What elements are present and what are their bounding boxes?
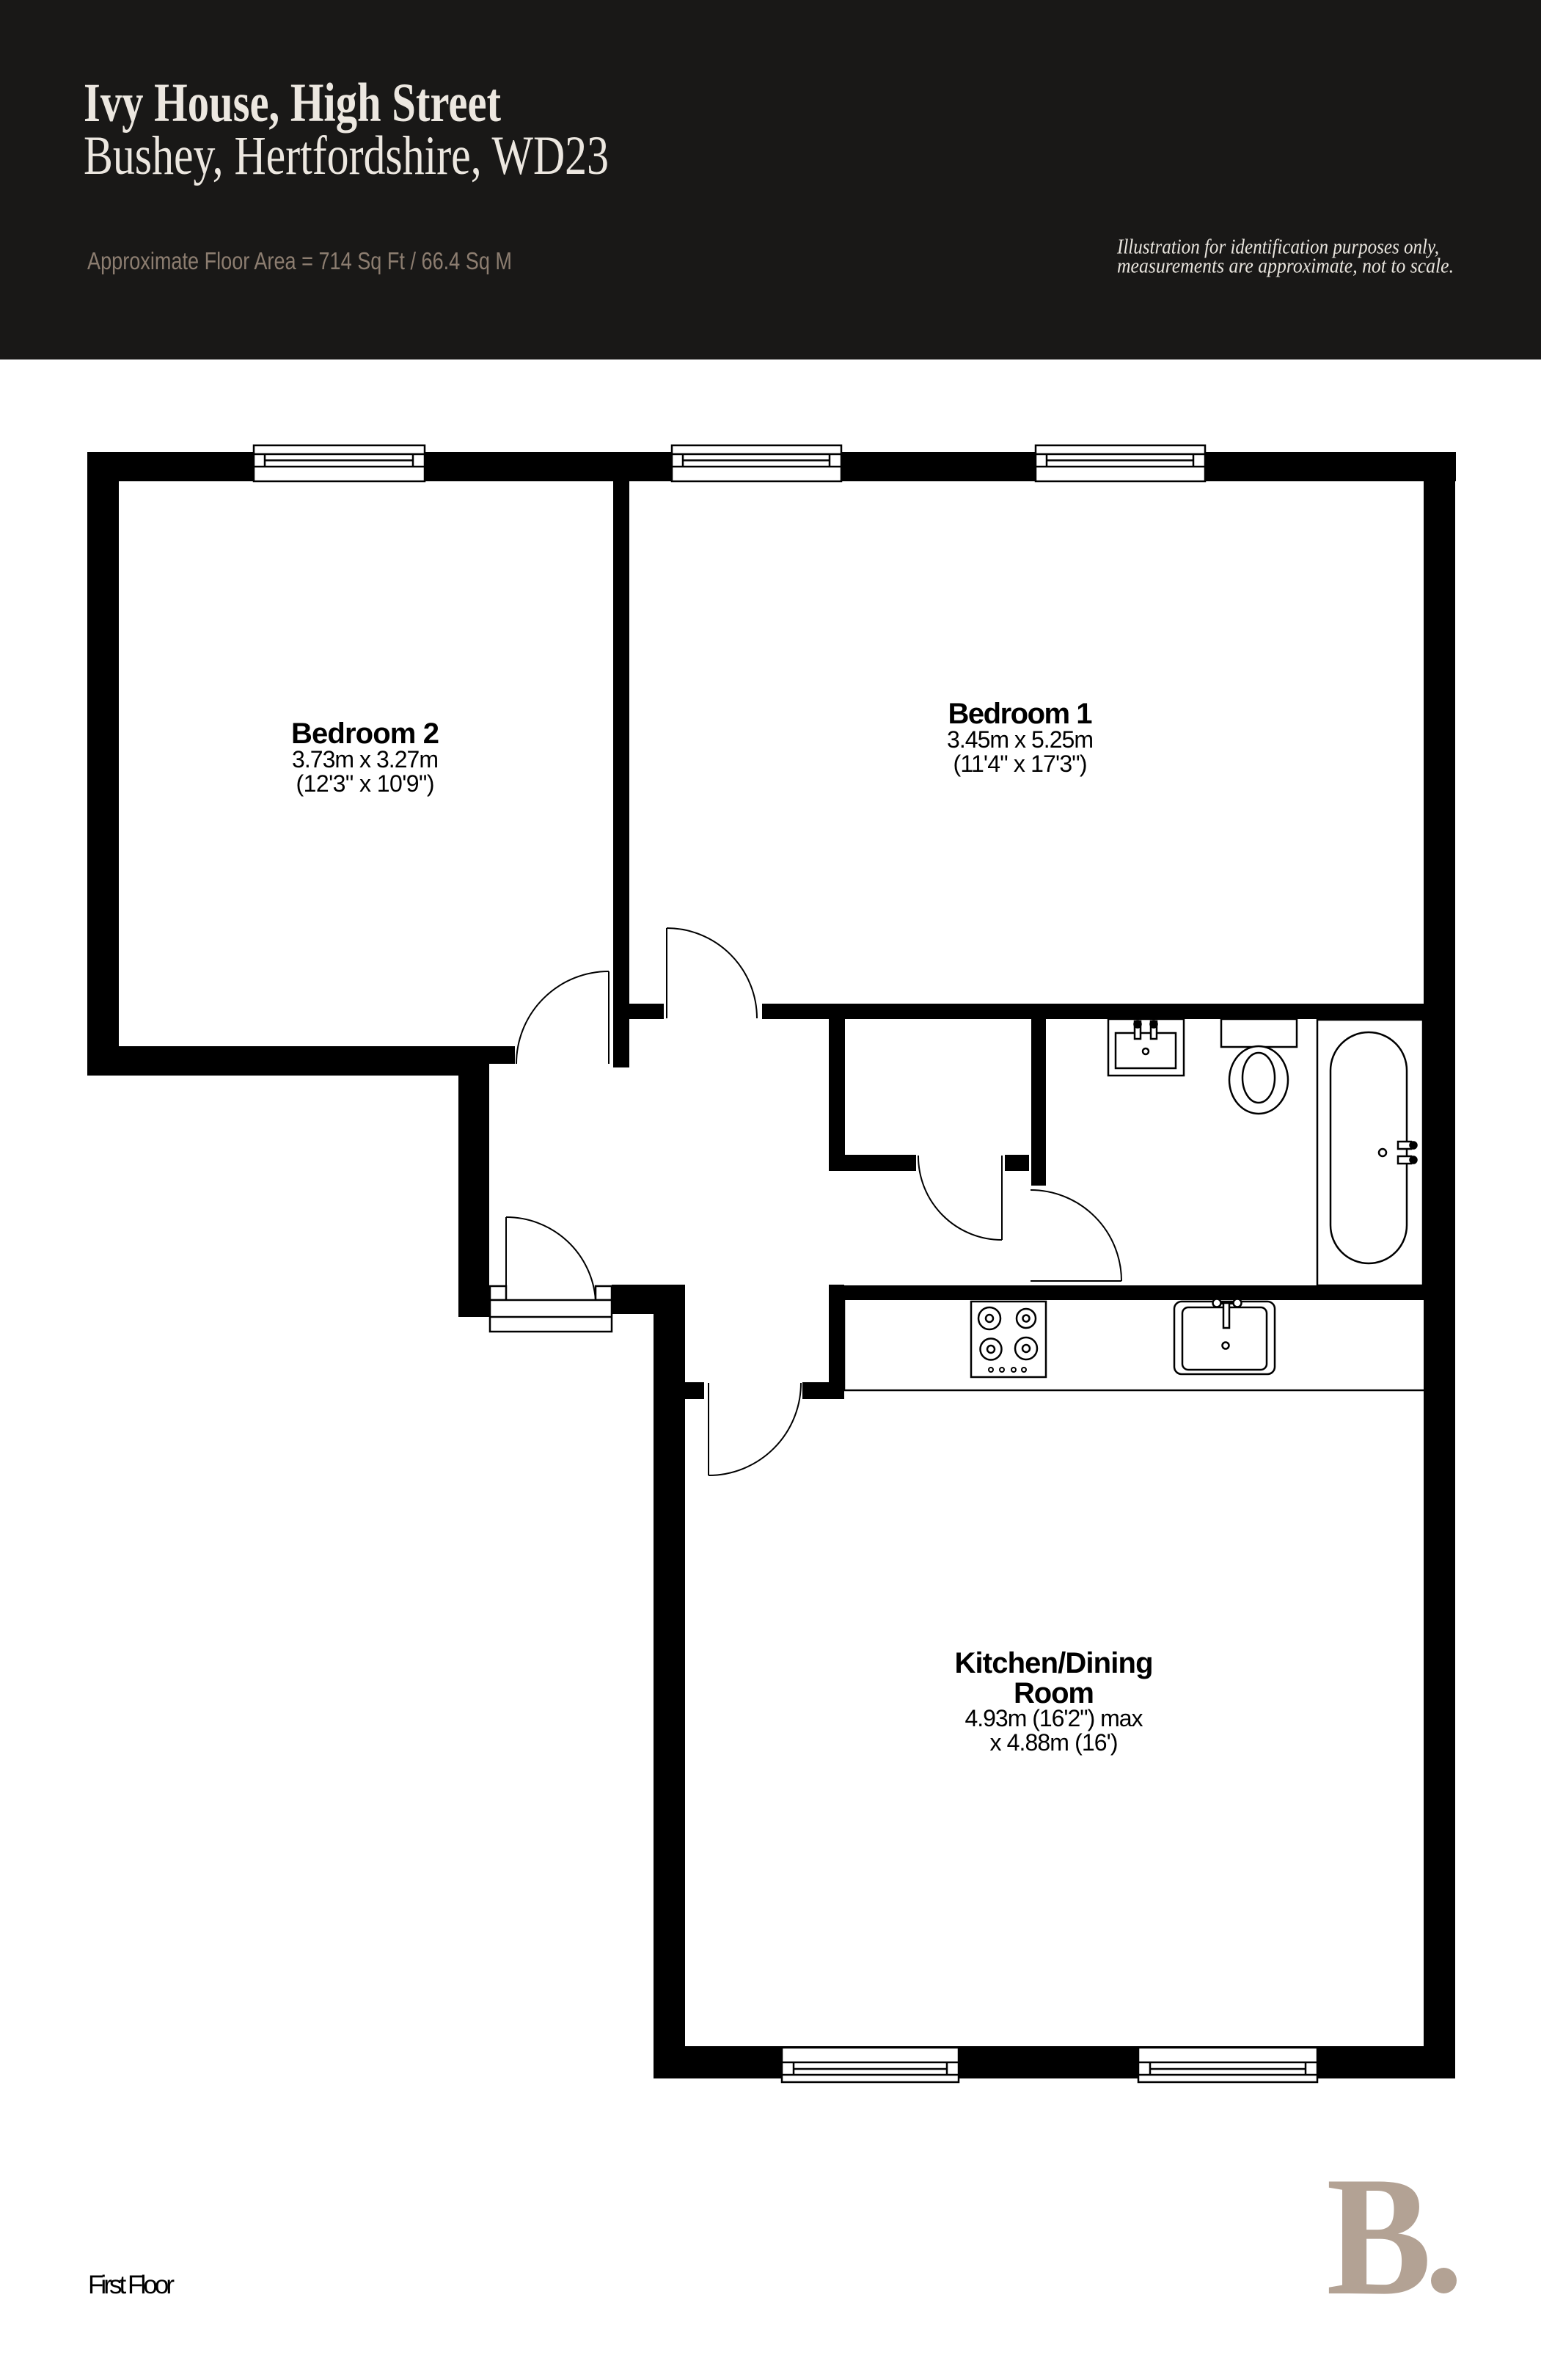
svg-text:Ivy House, High Street: Ivy House, High Street (84, 73, 501, 134)
svg-text:Kitchen/Dining: Kitchen/Dining (955, 1647, 1154, 1679)
svg-text:(11'4" x 17'3"): (11'4" x 17'3") (953, 751, 1088, 777)
svg-text:Bedroom 1: Bedroom 1 (948, 698, 1093, 730)
svg-text:3.73m x 3.27m: 3.73m x 3.27m (292, 746, 439, 773)
svg-text:Approximate Floor Area = 714 S: Approximate Floor Area = 714 Sq Ft / 66.… (87, 247, 512, 274)
svg-text:4.93m (16'2") max: 4.93m (16'2") max (965, 1705, 1143, 1731)
svg-text:B: B (1326, 2142, 1431, 2331)
svg-text:Bushey, Hertfordshire, WD23: Bushey, Hertfordshire, WD23 (84, 125, 609, 186)
svg-text:Bedroom 2: Bedroom 2 (291, 718, 439, 750)
svg-text:measurements are approximate,: measurements are approximate, not to sca… (1117, 255, 1454, 278)
svg-text:First Floor: First Floor (88, 2271, 175, 2299)
svg-text:(12'3" x 10'9"): (12'3" x 10'9") (296, 770, 435, 797)
svg-text:x 4.88m (16'): x 4.88m (16') (990, 1729, 1119, 1756)
svg-text:3.45m x 5.25m: 3.45m x 5.25m (947, 726, 1094, 753)
